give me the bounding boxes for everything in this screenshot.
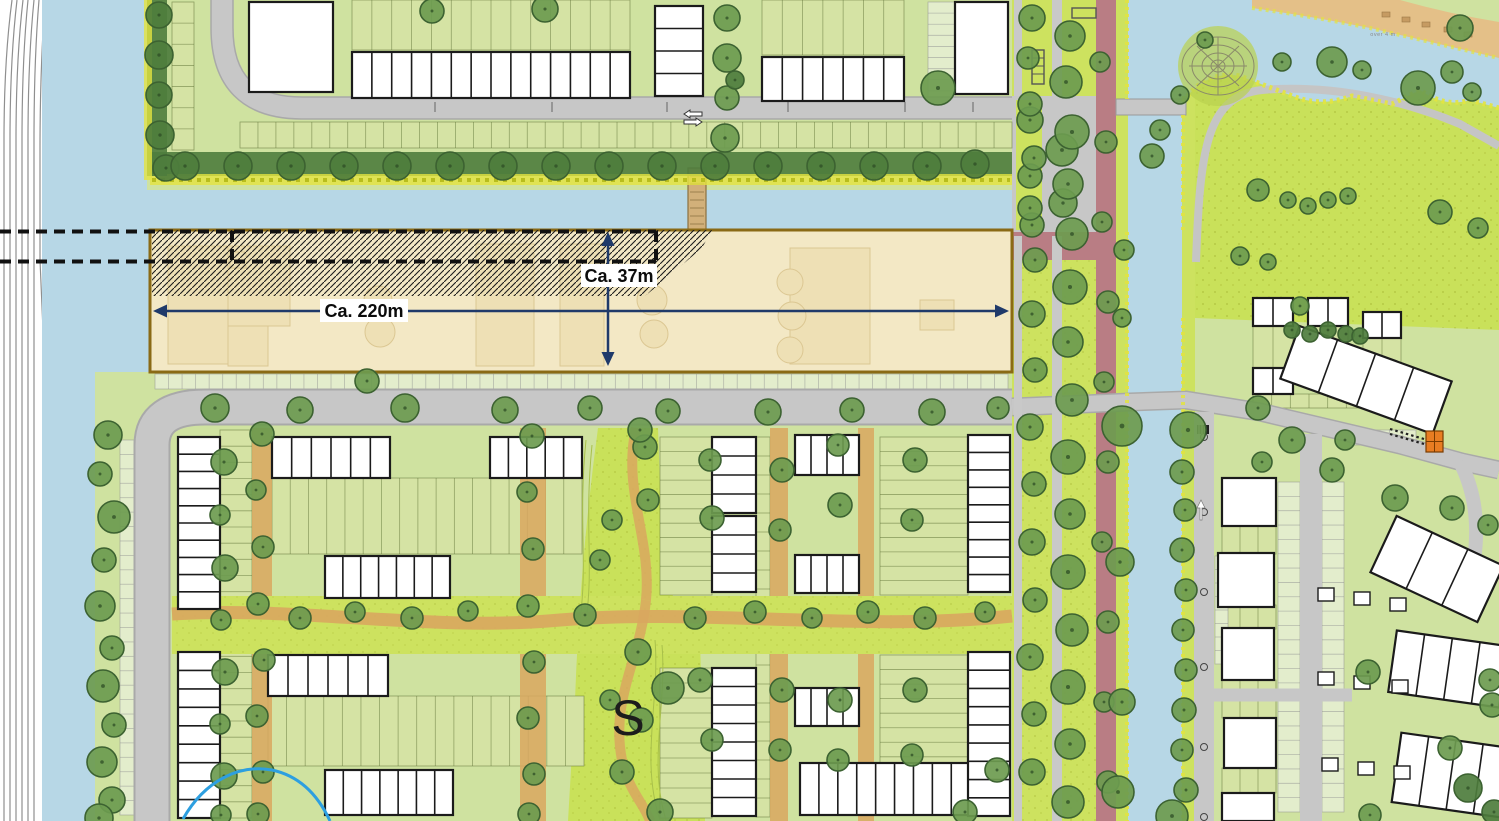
hedge-tree-icon	[961, 150, 989, 178]
tree-icon	[201, 394, 229, 422]
tree-icon	[590, 550, 610, 570]
tree-icon	[770, 458, 794, 482]
tree-icon	[1468, 218, 1488, 238]
tree-icon	[1382, 485, 1408, 511]
tree-icon	[1097, 611, 1119, 633]
building	[1224, 718, 1276, 768]
hedge-tree-icon	[807, 152, 835, 180]
tree-icon	[840, 398, 864, 422]
tree-icon	[1019, 759, 1045, 785]
tree-icon	[355, 369, 379, 393]
tree-icon	[602, 510, 622, 530]
tree-icon	[1231, 247, 1249, 265]
tree-icon	[1174, 778, 1198, 802]
tree-icon	[828, 493, 852, 517]
building	[655, 6, 703, 96]
tree-icon	[1478, 515, 1498, 535]
tree-icon	[901, 744, 923, 766]
tree-icon	[492, 397, 518, 423]
tree-icon	[1094, 372, 1114, 392]
hedge-tree-icon	[913, 152, 941, 180]
garden-strip	[352, 0, 630, 50]
tree-icon	[1172, 698, 1196, 722]
tree-icon	[1150, 120, 1170, 140]
building	[1222, 628, 1274, 680]
hedge-tree-icon	[1302, 326, 1318, 342]
shed	[1358, 762, 1374, 775]
building	[352, 52, 630, 98]
shed	[1392, 680, 1408, 693]
building	[1363, 312, 1401, 338]
shed	[1354, 592, 1370, 605]
tree-icon	[517, 595, 539, 617]
tree-icon	[94, 421, 122, 449]
tree-icon	[903, 448, 927, 472]
tree-icon	[1175, 579, 1197, 601]
hedge-tree-icon	[146, 121, 174, 149]
tree-icon	[1056, 384, 1088, 416]
tree-icon	[1097, 291, 1119, 313]
dimension-width-label: Ca. 220m	[324, 301, 403, 321]
tree-icon	[1463, 83, 1481, 101]
tree-icon	[210, 505, 230, 525]
tree-icon	[522, 538, 544, 560]
tree-icon	[210, 714, 230, 734]
tree-icon	[211, 805, 231, 821]
tree-icon	[1356, 660, 1380, 684]
tree-icon	[578, 396, 602, 420]
tree-icon	[211, 610, 231, 630]
tree-icon	[1246, 396, 1270, 420]
hedge-tree-icon	[146, 2, 172, 28]
tree-icon	[1055, 499, 1085, 529]
tree-icon	[1106, 548, 1134, 576]
tree-icon	[1053, 327, 1083, 357]
tree-icon	[458, 601, 478, 621]
tree-icon	[87, 670, 119, 702]
tree-icon	[744, 601, 766, 623]
tree-icon	[1053, 270, 1087, 304]
tree-icon	[1019, 5, 1045, 31]
hedge-tree-icon	[330, 152, 358, 180]
tree-icon	[1175, 659, 1197, 681]
tree-icon	[420, 0, 444, 23]
tree-icon	[250, 422, 274, 446]
tree-icon	[1479, 669, 1499, 691]
building	[1218, 553, 1274, 607]
tree-icon	[1140, 144, 1164, 168]
shed	[1318, 672, 1334, 685]
tree-icon	[1170, 412, 1206, 448]
tree-icon	[901, 509, 923, 531]
tree-icon	[247, 803, 269, 821]
tree-icon	[88, 462, 112, 486]
tree-icon	[1340, 188, 1356, 204]
hedge-tree-icon	[1320, 322, 1336, 338]
tree-icon	[828, 688, 852, 712]
tree-icon	[1017, 47, 1039, 69]
site-plan-drawing: Ca. 220m Ca. 37m S over 4 m	[0, 0, 1499, 821]
tree-icon	[1022, 702, 1046, 726]
tree-icon	[1095, 131, 1117, 153]
tree-icon	[701, 729, 723, 751]
tree-icon	[1279, 427, 1305, 453]
tree-icon	[100, 636, 124, 660]
tree-icon	[625, 639, 651, 665]
tree-icon	[1018, 92, 1042, 116]
tree-icon	[520, 424, 544, 448]
tree-icon	[1353, 61, 1371, 79]
tree-icon	[1438, 736, 1462, 760]
hedge-tree-icon	[542, 152, 570, 180]
tree-icon	[1017, 414, 1043, 440]
tree-icon	[656, 399, 680, 423]
railway-corridor	[0, 0, 48, 821]
tree-icon	[827, 749, 849, 771]
tree-icon	[1480, 693, 1499, 717]
tree-icon	[1174, 499, 1196, 521]
tree-icon	[247, 593, 269, 615]
hedge-tree-icon	[145, 41, 173, 69]
tree-icon	[1019, 301, 1045, 327]
tree-icon	[1252, 452, 1272, 472]
tree-icon	[1280, 192, 1296, 208]
tree-icon	[700, 506, 724, 530]
tree-icon	[713, 44, 741, 72]
tree-icon	[87, 747, 117, 777]
tree-icon	[1170, 538, 1194, 562]
parking-strip	[120, 440, 134, 815]
tree-icon	[253, 649, 275, 671]
tree-icon	[647, 799, 673, 821]
tree-icon	[1055, 729, 1085, 759]
tree-icon	[1051, 670, 1085, 704]
building	[795, 555, 859, 593]
tree-icon	[1053, 169, 1083, 199]
building	[968, 435, 1010, 592]
hedge-tree-icon	[171, 152, 199, 180]
tree-icon	[769, 739, 791, 761]
tree-icon	[1300, 198, 1316, 214]
tree-icon	[98, 501, 130, 533]
hedge-tree-icon	[277, 152, 305, 180]
tree-icon	[1170, 460, 1194, 484]
hedge-tree-icon	[1352, 328, 1368, 344]
tree-icon	[1247, 179, 1269, 201]
hedge-tree-icon	[701, 152, 729, 180]
tree-icon	[287, 397, 313, 423]
water-note: over 4 m	[1370, 32, 1395, 38]
shed	[1390, 598, 1406, 611]
tree-icon	[714, 5, 740, 31]
building	[955, 2, 1008, 94]
tree-icon	[1102, 406, 1142, 446]
tree-icon	[92, 548, 116, 572]
tree-icon	[1171, 86, 1189, 104]
hedge-tree-icon	[383, 152, 411, 180]
dimension-height-label: Ca. 37m	[584, 266, 653, 286]
tree-icon	[211, 449, 237, 475]
tree-icon	[1109, 689, 1135, 715]
building	[1222, 478, 1276, 526]
tree-icon	[903, 678, 927, 702]
tree-icon	[975, 602, 995, 622]
tree-icon	[523, 651, 545, 673]
tree-icon	[684, 607, 706, 629]
tree-icon	[1051, 440, 1085, 474]
tree-icon	[919, 399, 945, 425]
building	[249, 2, 333, 92]
tree-icon	[1401, 71, 1435, 105]
hedge-tree-icon	[1284, 322, 1300, 338]
hedge-tree-icon	[726, 71, 744, 89]
labyrinth-icon	[1178, 26, 1258, 106]
building	[712, 437, 756, 513]
tree-icon	[1055, 21, 1085, 51]
area-marker-s: S	[611, 690, 644, 746]
tree-icon	[755, 399, 781, 425]
tree-icon	[212, 659, 238, 685]
tree-icon	[987, 397, 1009, 419]
tree-icon	[1335, 430, 1355, 450]
tree-icon	[1050, 66, 1082, 98]
tree-icon	[1022, 146, 1046, 170]
tree-icon	[711, 124, 739, 152]
hedge-tree-icon	[489, 152, 517, 180]
tree-icon	[1171, 739, 1193, 761]
tree-icon	[1023, 588, 1047, 612]
tree-icon	[985, 758, 1009, 782]
tree-icon	[1092, 532, 1112, 552]
tree-icon	[574, 604, 596, 626]
tree-icon	[1428, 200, 1452, 224]
tree-icon	[1441, 61, 1463, 83]
building	[1222, 793, 1274, 821]
tree-icon	[252, 536, 274, 558]
hedge-tree-icon	[860, 152, 888, 180]
tree-icon	[1090, 52, 1110, 72]
tree-icon	[85, 591, 115, 621]
hedge-tree-icon	[224, 152, 252, 180]
shed	[1322, 758, 1338, 771]
tree-icon	[532, 0, 558, 22]
tree-icon	[1017, 644, 1043, 670]
tree-icon	[1051, 555, 1085, 589]
tree-icon	[1273, 53, 1291, 71]
tree-icon	[1056, 218, 1088, 250]
tree-icon	[827, 434, 849, 456]
tree-icon	[1052, 786, 1084, 818]
tree-icon	[1359, 804, 1381, 821]
tree-icon	[802, 608, 822, 628]
orange-play-element	[1426, 431, 1443, 452]
building	[268, 655, 388, 696]
tree-icon	[1317, 47, 1347, 77]
tree-icon	[688, 668, 712, 692]
shed	[1394, 766, 1410, 779]
tree-icon	[517, 707, 539, 729]
tree-icon	[921, 71, 955, 105]
tree-icon	[1019, 529, 1045, 555]
tree-icon	[637, 489, 659, 511]
tree-icon	[289, 607, 311, 629]
tree-icon	[1447, 15, 1473, 41]
hedge-tree-icon	[648, 152, 676, 180]
tree-icon	[1440, 496, 1464, 520]
hedge-tree-icon	[754, 152, 782, 180]
tree-icon	[769, 519, 791, 541]
hedge-tree-icon	[1454, 774, 1482, 802]
hedge-tree-icon	[146, 82, 172, 108]
tree-icon	[246, 480, 266, 500]
tree-icon	[391, 394, 419, 422]
tree-icon	[1056, 614, 1088, 646]
hedge-tree-icon	[595, 152, 623, 180]
building	[272, 437, 390, 478]
tree-icon	[1197, 32, 1213, 48]
tree-icon	[1102, 776, 1134, 808]
tree-icon	[1320, 458, 1344, 482]
parking-strip	[1278, 482, 1300, 812]
garden-strip	[1222, 526, 1276, 554]
tree-icon	[345, 602, 365, 622]
tree-icon	[610, 760, 634, 784]
tree-icon	[212, 555, 238, 581]
tree-icon	[652, 672, 684, 704]
tree-icon	[523, 763, 545, 785]
tree-icon	[1320, 192, 1336, 208]
building	[1253, 298, 1293, 326]
tree-icon	[1291, 297, 1309, 315]
tree-icon	[699, 449, 721, 471]
highlight-strip	[150, 230, 1012, 372]
tree-icon	[102, 713, 126, 737]
tree-icon	[518, 803, 540, 821]
parking-strip	[155, 374, 1008, 389]
site-plan-map: Ca. 220m Ca. 37m S over 4 m	[0, 0, 1499, 821]
building	[325, 770, 453, 815]
tree-icon	[1055, 115, 1089, 149]
tree-icon	[1092, 212, 1112, 232]
tree-icon	[1113, 309, 1131, 327]
tree-icon	[401, 607, 423, 629]
tree-icon	[1023, 358, 1047, 382]
hedge-tree-icon	[436, 152, 464, 180]
tree-icon	[246, 705, 268, 727]
tree-icon	[252, 761, 274, 783]
tree-icon	[1018, 196, 1042, 220]
tree-icon	[1114, 240, 1134, 260]
shed	[1318, 588, 1334, 601]
building	[762, 57, 904, 101]
building	[325, 556, 450, 598]
tree-icon	[1097, 451, 1119, 473]
tree-icon	[1022, 472, 1046, 496]
garden-strip	[240, 122, 1012, 148]
garden-strip	[1222, 768, 1276, 793]
garden-strip	[172, 2, 194, 150]
tree-icon	[1172, 619, 1194, 641]
garden-strip	[762, 0, 904, 55]
tree-icon	[953, 800, 977, 821]
tree-icon	[770, 678, 794, 702]
building	[968, 652, 1010, 816]
tree-icon	[1260, 254, 1276, 270]
tree-icon	[1023, 248, 1047, 272]
tree-icon	[914, 607, 936, 629]
tree-icon	[628, 418, 652, 442]
tree-icon	[857, 601, 879, 623]
garden-strip	[1222, 605, 1276, 629]
tree-icon	[517, 482, 537, 502]
